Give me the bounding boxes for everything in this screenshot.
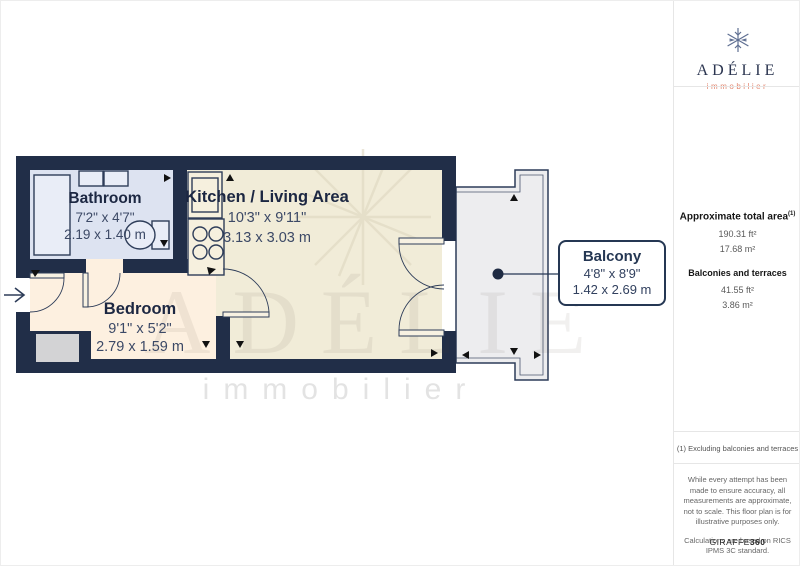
footnote: (1) Excluding balconies and terraces [674, 444, 800, 453]
watermark-word: ADÉLIE [144, 271, 608, 373]
entrance-arrow-icon [4, 288, 24, 302]
info-sidebar: ADÉLIE immobilier Approximate total area… [673, 1, 800, 566]
kitchen-fixtures [188, 172, 224, 275]
total-area-ft: 190.31 ft² [674, 227, 800, 242]
divider [674, 431, 800, 432]
toilet-bowl-icon [125, 221, 155, 249]
agency-logo: ADÉLIE immobilier [674, 27, 800, 91]
wardrobe [36, 334, 79, 362]
divider [674, 86, 800, 87]
divider [674, 463, 800, 464]
balconies-m: 3.86 m² [674, 298, 800, 313]
giraffe360-suffix: 360 [750, 537, 766, 547]
room-name: Balcony [583, 248, 641, 266]
balcony-callout: Balcony 4'8" x 8'9" 1.42 x 2.69 m [558, 240, 666, 306]
giraffe360-name: GIRAFFE [709, 537, 749, 547]
balconies-ft: 41.55 ft² [674, 283, 800, 298]
area-summary: Approximate total area(1) 190.31 ft² 17.… [674, 211, 800, 313]
giraffe360-brand: GIRAFFE360 [674, 537, 800, 547]
shower-icon [34, 175, 70, 255]
balconies-heading: Balconies and terraces [674, 268, 800, 278]
room-dimensions-metric: 1.42 x 2.69 m [573, 282, 652, 298]
room-dimensions-imperial: 4'8" x 8'9" [584, 266, 641, 282]
sink-icon [79, 171, 103, 186]
agency-name: ADÉLIE [674, 62, 800, 80]
total-area-heading-text: Approximate total area [680, 211, 788, 222]
disclaimer-text: While every attempt has been made to ens… [682, 475, 793, 528]
sink-icon [104, 171, 128, 186]
floorplan-page: ADÉLIE immobilier [0, 0, 800, 566]
footnote-marker: (1) [788, 211, 795, 217]
total-area-m: 17.68 m² [674, 242, 800, 257]
snowflake-icon [725, 27, 751, 53]
watermark-tagline: immobilier [203, 373, 480, 406]
total-area-heading: Approximate total area(1) [674, 211, 800, 222]
